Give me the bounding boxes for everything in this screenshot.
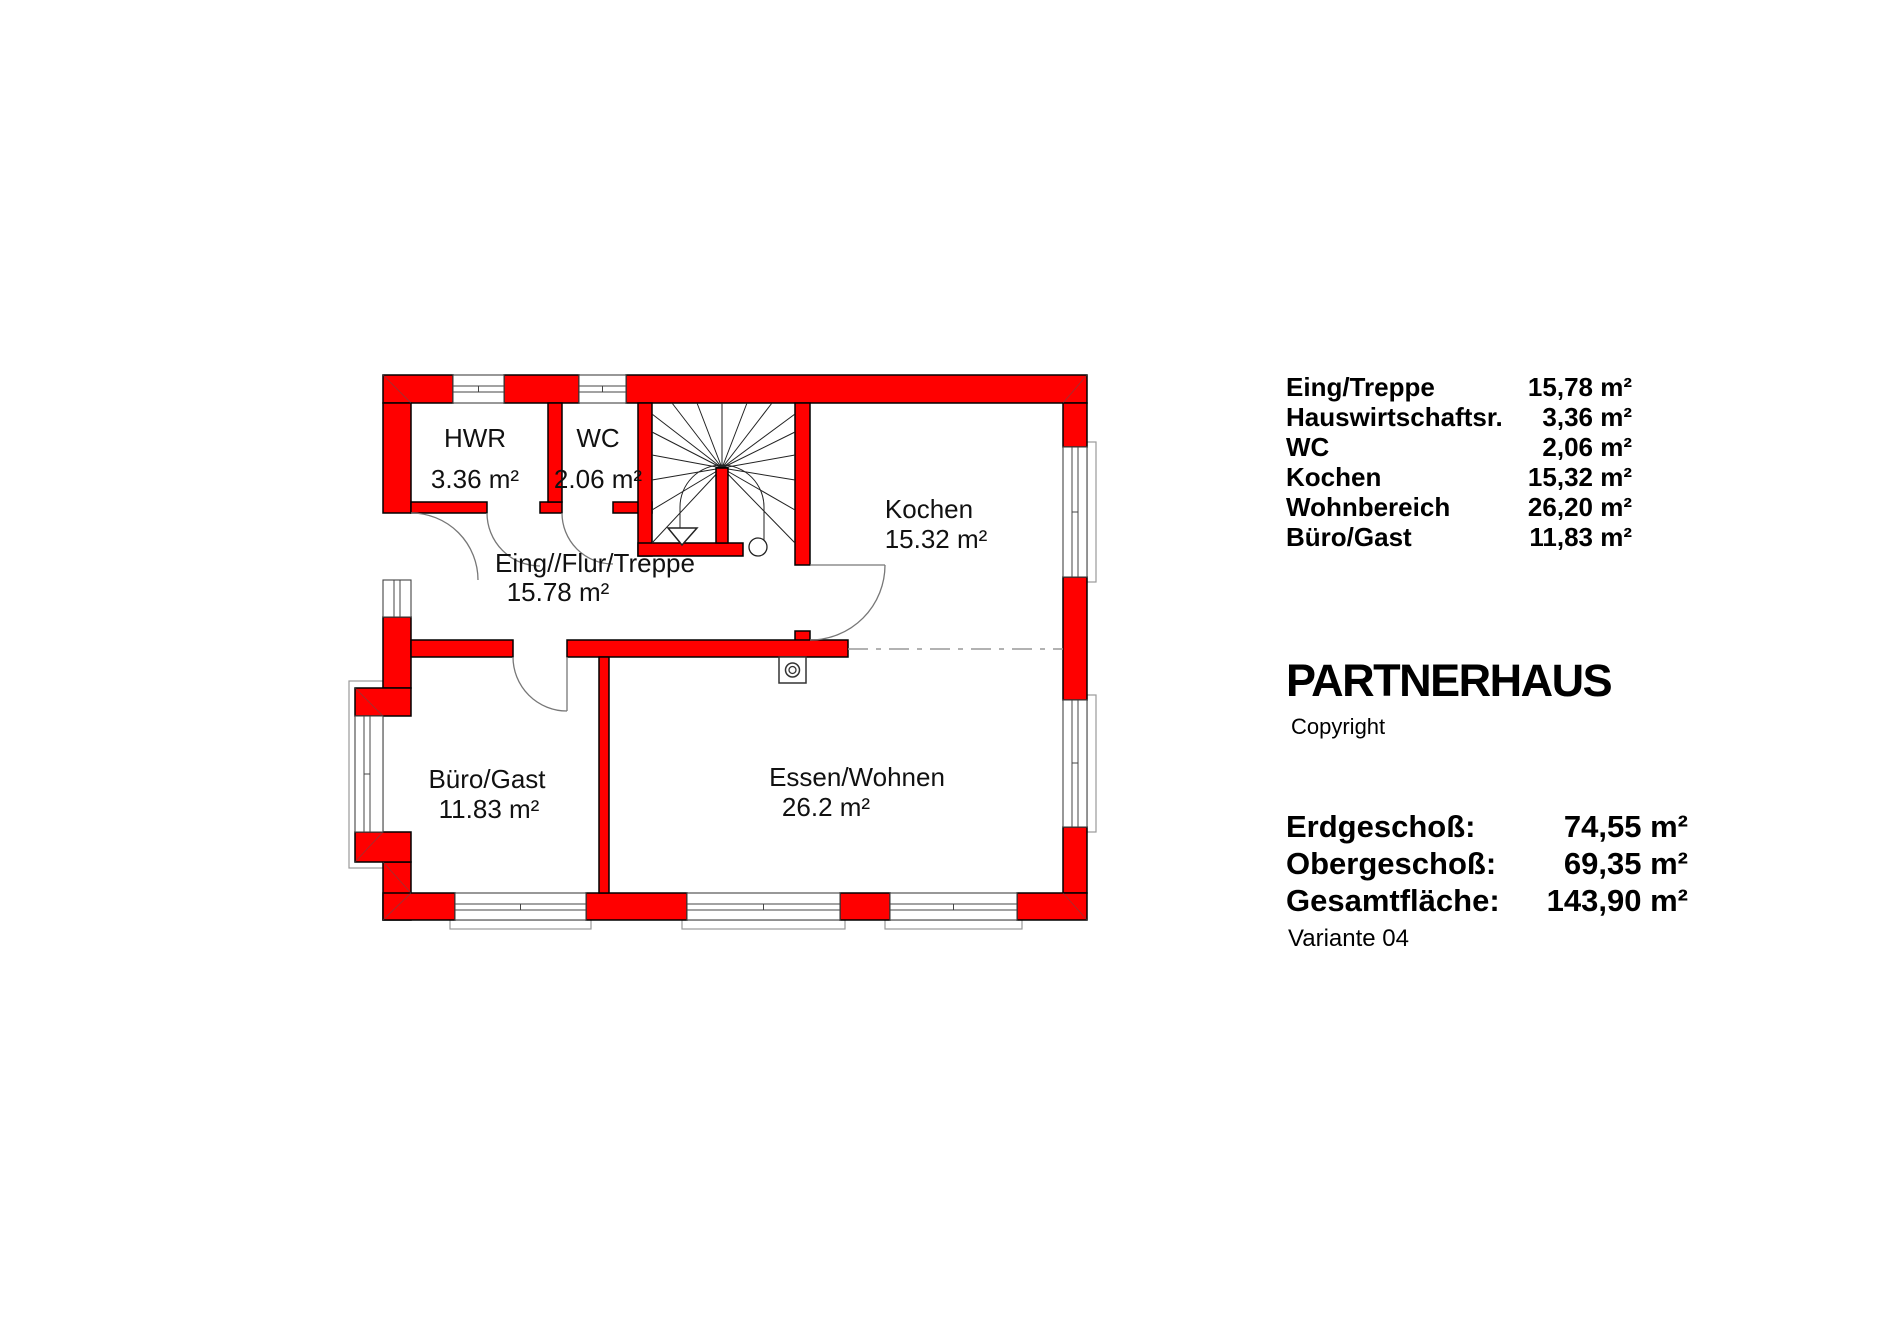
room-list-label: WC <box>1286 432 1329 462</box>
room-area-buero: 11.83 m² <box>439 794 540 824</box>
room-list-value: 15,78 m² <box>1528 372 1632 402</box>
total-label: Obergeschoß: <box>1286 845 1496 882</box>
wall-flur-bottom-left <box>411 640 513 657</box>
room-list-label: Kochen <box>1286 462 1381 492</box>
entry-sidelight <box>383 580 411 617</box>
wall-right-2 <box>1063 577 1087 700</box>
room-list-label: Büro/Gast <box>1286 522 1412 552</box>
total-label: Gesamtfläche: <box>1286 882 1500 919</box>
room-area-wc: 2.06 m² <box>554 464 642 494</box>
wall-left-1 <box>383 403 411 513</box>
room-list-value: 3,36 m² <box>1542 402 1632 432</box>
room-list-row: Hauswirtschaftsr. 3,36 m² <box>1286 402 1632 432</box>
brand-block: PARTNERHAUS Copyright <box>1286 658 1611 740</box>
total-value: 69,35 m² <box>1564 845 1688 882</box>
room-label-wc: WC <box>576 423 619 453</box>
wall-hwr-bottom <box>411 502 487 513</box>
room-list-row: Büro/Gast 11,83 m² <box>1286 522 1632 552</box>
staircase <box>652 403 795 556</box>
stair-spine-wall <box>716 468 728 543</box>
wall-buero-essen-partition <box>599 657 609 893</box>
entry-door-swing <box>411 513 478 580</box>
total-value: 74,55 m² <box>1564 808 1688 845</box>
room-label-essen: Essen/Wohnen <box>769 762 945 792</box>
room-list-label: Hauswirtschaftsr. <box>1286 402 1503 432</box>
wall-stair-right <box>795 403 810 565</box>
wall-flur-bottom-right <box>567 640 848 657</box>
sill-right-lower <box>1087 695 1096 832</box>
room-list-value: 2,06 m² <box>1542 432 1632 462</box>
wall-top-1 <box>383 375 453 403</box>
sill-right-upper <box>1087 442 1096 582</box>
buero-door-swing <box>513 657 567 711</box>
wall-bottom-2 <box>586 893 687 920</box>
chimney-body <box>779 657 806 683</box>
wall-bottom-4 <box>1017 893 1087 920</box>
wall-bottom-1 <box>383 893 455 920</box>
room-list-label: Wohnbereich <box>1286 492 1450 522</box>
total-value: 143,90 m² <box>1547 882 1688 919</box>
variant-label: Variante 04 <box>1288 925 1409 953</box>
wall-right-3 <box>1063 827 1087 893</box>
wall-right-1 <box>1063 403 1087 447</box>
wall-top-2 <box>504 375 579 403</box>
sill-bottom-right <box>885 920 1022 929</box>
room-label-buero: Büro/Gast <box>428 764 546 794</box>
kochen-door-swing <box>810 565 885 640</box>
sill-bottom-left <box>450 920 591 929</box>
wall-left-2 <box>383 617 411 688</box>
brand-title: PARTNERHAUS <box>1286 658 1611 703</box>
room-list-label: Eing/Treppe <box>1286 372 1435 402</box>
area-totals: Erdgeschoß: 74,55 m² Obergeschoß: 69,35 … <box>1286 808 1688 919</box>
bay-pier-bottom <box>355 832 411 862</box>
room-area-kochen: 15.32 m² <box>885 524 988 554</box>
brand-copyright: Copyright <box>1286 714 1611 740</box>
room-list-value: 11,83 m² <box>1529 522 1632 552</box>
wall-hwr-wc-jamb <box>540 502 562 513</box>
room-list-row: WC 2,06 m² <box>1286 432 1632 462</box>
room-label-hwr: HWR <box>444 423 506 453</box>
total-label: Erdgeschoß: <box>1286 808 1475 845</box>
wall-top-3 <box>626 375 1087 403</box>
room-list-row: Kochen 15,32 m² <box>1286 462 1632 492</box>
room-area-hwr: 3.36 m² <box>431 464 519 494</box>
room-label-flur: Eing//Flur/Treppe <box>495 548 695 578</box>
chimney <box>779 657 806 683</box>
room-area-list: Eing/Treppe 15,78 m² Hauswirtschaftsr. 3… <box>1286 372 1632 552</box>
stair-newel-post <box>749 538 767 556</box>
room-label-kochen: Kochen <box>885 494 973 524</box>
room-list-row: Eing/Treppe 15,78 m² <box>1286 372 1632 402</box>
room-list-value: 26,20 m² <box>1528 492 1632 522</box>
total-row: Obergeschoß: 69,35 m² <box>1286 845 1688 882</box>
total-row: Gesamtfläche: 143,90 m² <box>1286 882 1688 919</box>
sill-bottom-middle <box>682 920 845 929</box>
bay-pier-top <box>355 688 411 716</box>
floor-plan: HWR 3.36 m² WC 2.06 m² Eing//Flur/Treppe… <box>340 360 1110 960</box>
room-area-essen: 26.2 m² <box>782 792 870 822</box>
room-area-flur: 15.78 m² <box>507 577 610 607</box>
total-row: Erdgeschoß: 74,55 m² <box>1286 808 1688 845</box>
wall-bottom-3 <box>840 893 890 920</box>
room-list-value: 15,32 m² <box>1528 462 1632 492</box>
room-list-row: Wohnbereich 26,20 m² <box>1286 492 1632 522</box>
